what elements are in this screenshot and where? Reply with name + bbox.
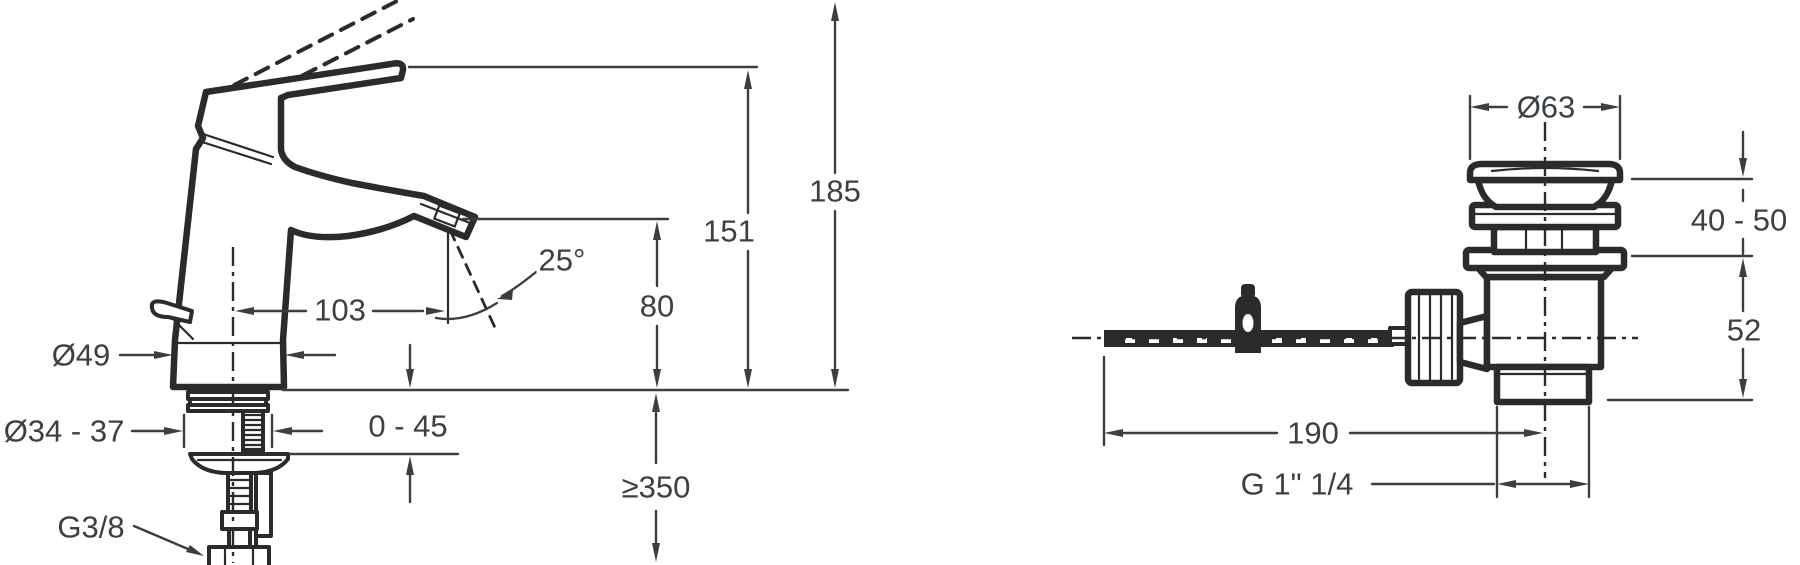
arrow-left-icon xyxy=(1470,103,1489,111)
label-supply-thread: G3/8 xyxy=(57,510,124,545)
arrow-left-icon xyxy=(1104,429,1123,437)
hose-fitting xyxy=(222,512,257,529)
arrow-up-icon xyxy=(653,221,661,240)
dim-plug-range: 40 - 50 xyxy=(1691,203,1788,238)
arrow-down-icon xyxy=(831,369,839,388)
arrow-down-icon xyxy=(653,369,661,388)
supply-hose xyxy=(228,473,251,512)
arrow-up-icon xyxy=(406,456,414,475)
arrow-left-icon xyxy=(1497,480,1516,488)
arrow-right-icon xyxy=(154,351,173,359)
arrow-down-icon xyxy=(406,369,414,388)
arrow-down-icon xyxy=(652,543,660,562)
arrow-down-icon xyxy=(1739,158,1747,177)
dim-body-height: 52 xyxy=(1727,313,1761,348)
drawing-canvas: 151 185 80 103 25° Ø49 xyxy=(0,0,1800,565)
arrow-right-icon xyxy=(1524,429,1543,437)
arrow-down-icon xyxy=(1739,379,1747,398)
angle-arc xyxy=(436,303,497,319)
dim-handle-height: 151 xyxy=(703,214,755,249)
dim-base-diameter: Ø49 xyxy=(52,338,111,373)
mounting-washer xyxy=(190,454,288,473)
dim-min-clearance: ≥350 xyxy=(622,470,691,505)
dim-spray-angle: 25° xyxy=(539,243,586,278)
dim-spout-height: 80 xyxy=(640,289,674,324)
faucet-body-outline xyxy=(173,63,475,387)
arrow-right-icon xyxy=(1601,103,1620,111)
faucet-dimensions: 151 185 80 103 25° Ø49 xyxy=(4,2,861,562)
arrow-up-icon xyxy=(652,393,660,412)
arrow-leader-icon xyxy=(186,545,204,556)
arrow-left-icon xyxy=(273,427,292,435)
drain-outlet-thread xyxy=(1497,367,1589,402)
dim-total-height: 185 xyxy=(809,174,861,209)
drain-body xyxy=(1390,164,1624,402)
angle-leader xyxy=(502,272,536,296)
dim-spout-reach: 103 xyxy=(314,293,366,328)
dim-hole-diameter: Ø34 - 37 xyxy=(4,414,125,449)
arrow-right-icon xyxy=(164,427,183,435)
arrow-up-icon xyxy=(744,70,752,89)
hose-end-nut xyxy=(209,547,269,565)
rod-adapter-cone xyxy=(1460,316,1487,369)
arrow-up-icon xyxy=(1739,258,1747,277)
arrow-down-icon xyxy=(744,369,752,388)
arrow-up-icon xyxy=(831,2,839,21)
arrow-right-icon xyxy=(426,307,445,315)
dim-rod-length: 190 xyxy=(1287,416,1339,451)
faucet-side-view: 151 185 80 103 25° Ø49 xyxy=(4,1,861,565)
spray-angle-dashed-line xyxy=(450,230,497,332)
supply-thread-leader xyxy=(134,526,188,549)
arrow-leader-icon xyxy=(497,290,513,300)
label-outlet-thread: G 1" 1/4 xyxy=(1241,467,1354,502)
dim-deck-thickness: 0 - 45 xyxy=(368,409,447,444)
technical-drawing: 151 185 80 103 25° Ø49 xyxy=(0,0,1800,565)
arrow-right-icon xyxy=(1570,480,1589,488)
clamp-hole xyxy=(1243,314,1254,332)
dim-flange-diameter: Ø63 xyxy=(1517,90,1576,125)
drain-assembly-view: Ø63 40 - 50 52 190 G 1" 1/4 xyxy=(1072,90,1787,502)
arrow-left-icon xyxy=(285,351,304,359)
